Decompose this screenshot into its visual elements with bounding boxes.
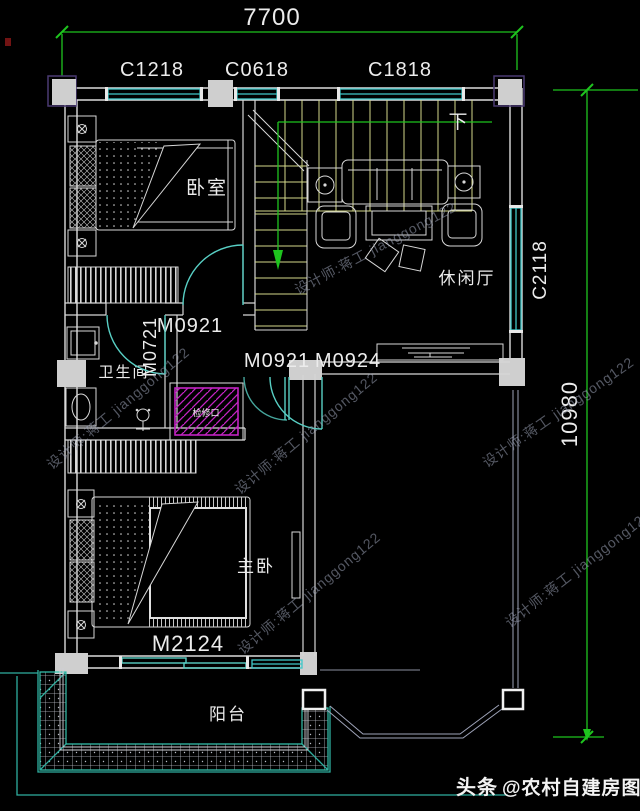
window-c1818 [337, 87, 465, 101]
floor-plan-page: 7700 10980 C1218 C0618 C1818 C2118 [0, 0, 640, 811]
label-lounge: 休闲厅 [439, 269, 496, 288]
window-c2118 [509, 205, 523, 333]
label-m2124: M2124 [152, 631, 224, 656]
label-c0618: C0618 [225, 59, 289, 81]
terrace-column [503, 690, 523, 709]
footer-credit: 头条 @农村自建房图纸 [456, 775, 640, 799]
headboard-cabinet [70, 188, 96, 228]
label-m0921-a: M0921 [157, 315, 223, 337]
dim-width-label: 7700 [243, 4, 300, 31]
headboard-cabinet [70, 146, 96, 186]
footer-brand: 头条 [456, 775, 498, 799]
terrace-column [303, 690, 325, 709]
label-master: 主卧 [237, 557, 275, 576]
window-c1218 [105, 87, 203, 101]
label-access-panel: 检修口 [192, 407, 219, 418]
label-m0921-b: M0921 [244, 350, 310, 372]
label-c1218: C1218 [120, 59, 184, 81]
floor-plan-canvas: 7700 10980 C1218 C0618 C1818 C2118 [0, 0, 640, 811]
headboard-cabinet [70, 520, 94, 560]
label-m0924: M0924 [315, 350, 381, 372]
red-marker [5, 38, 11, 46]
window-c0618 [234, 87, 280, 101]
label-c2118: C2118 [530, 240, 551, 300]
wardrobe [68, 440, 196, 473]
footer-handle: @农村自建房图纸 [502, 776, 640, 799]
headboard-cabinet [70, 562, 94, 602]
label-c1818: C1818 [368, 59, 432, 81]
wardrobe [68, 267, 178, 303]
label-bedroom: 卧室 [186, 177, 228, 199]
label-stairs-down: 下 [448, 112, 469, 133]
label-balcony: 阳台 [209, 705, 247, 724]
